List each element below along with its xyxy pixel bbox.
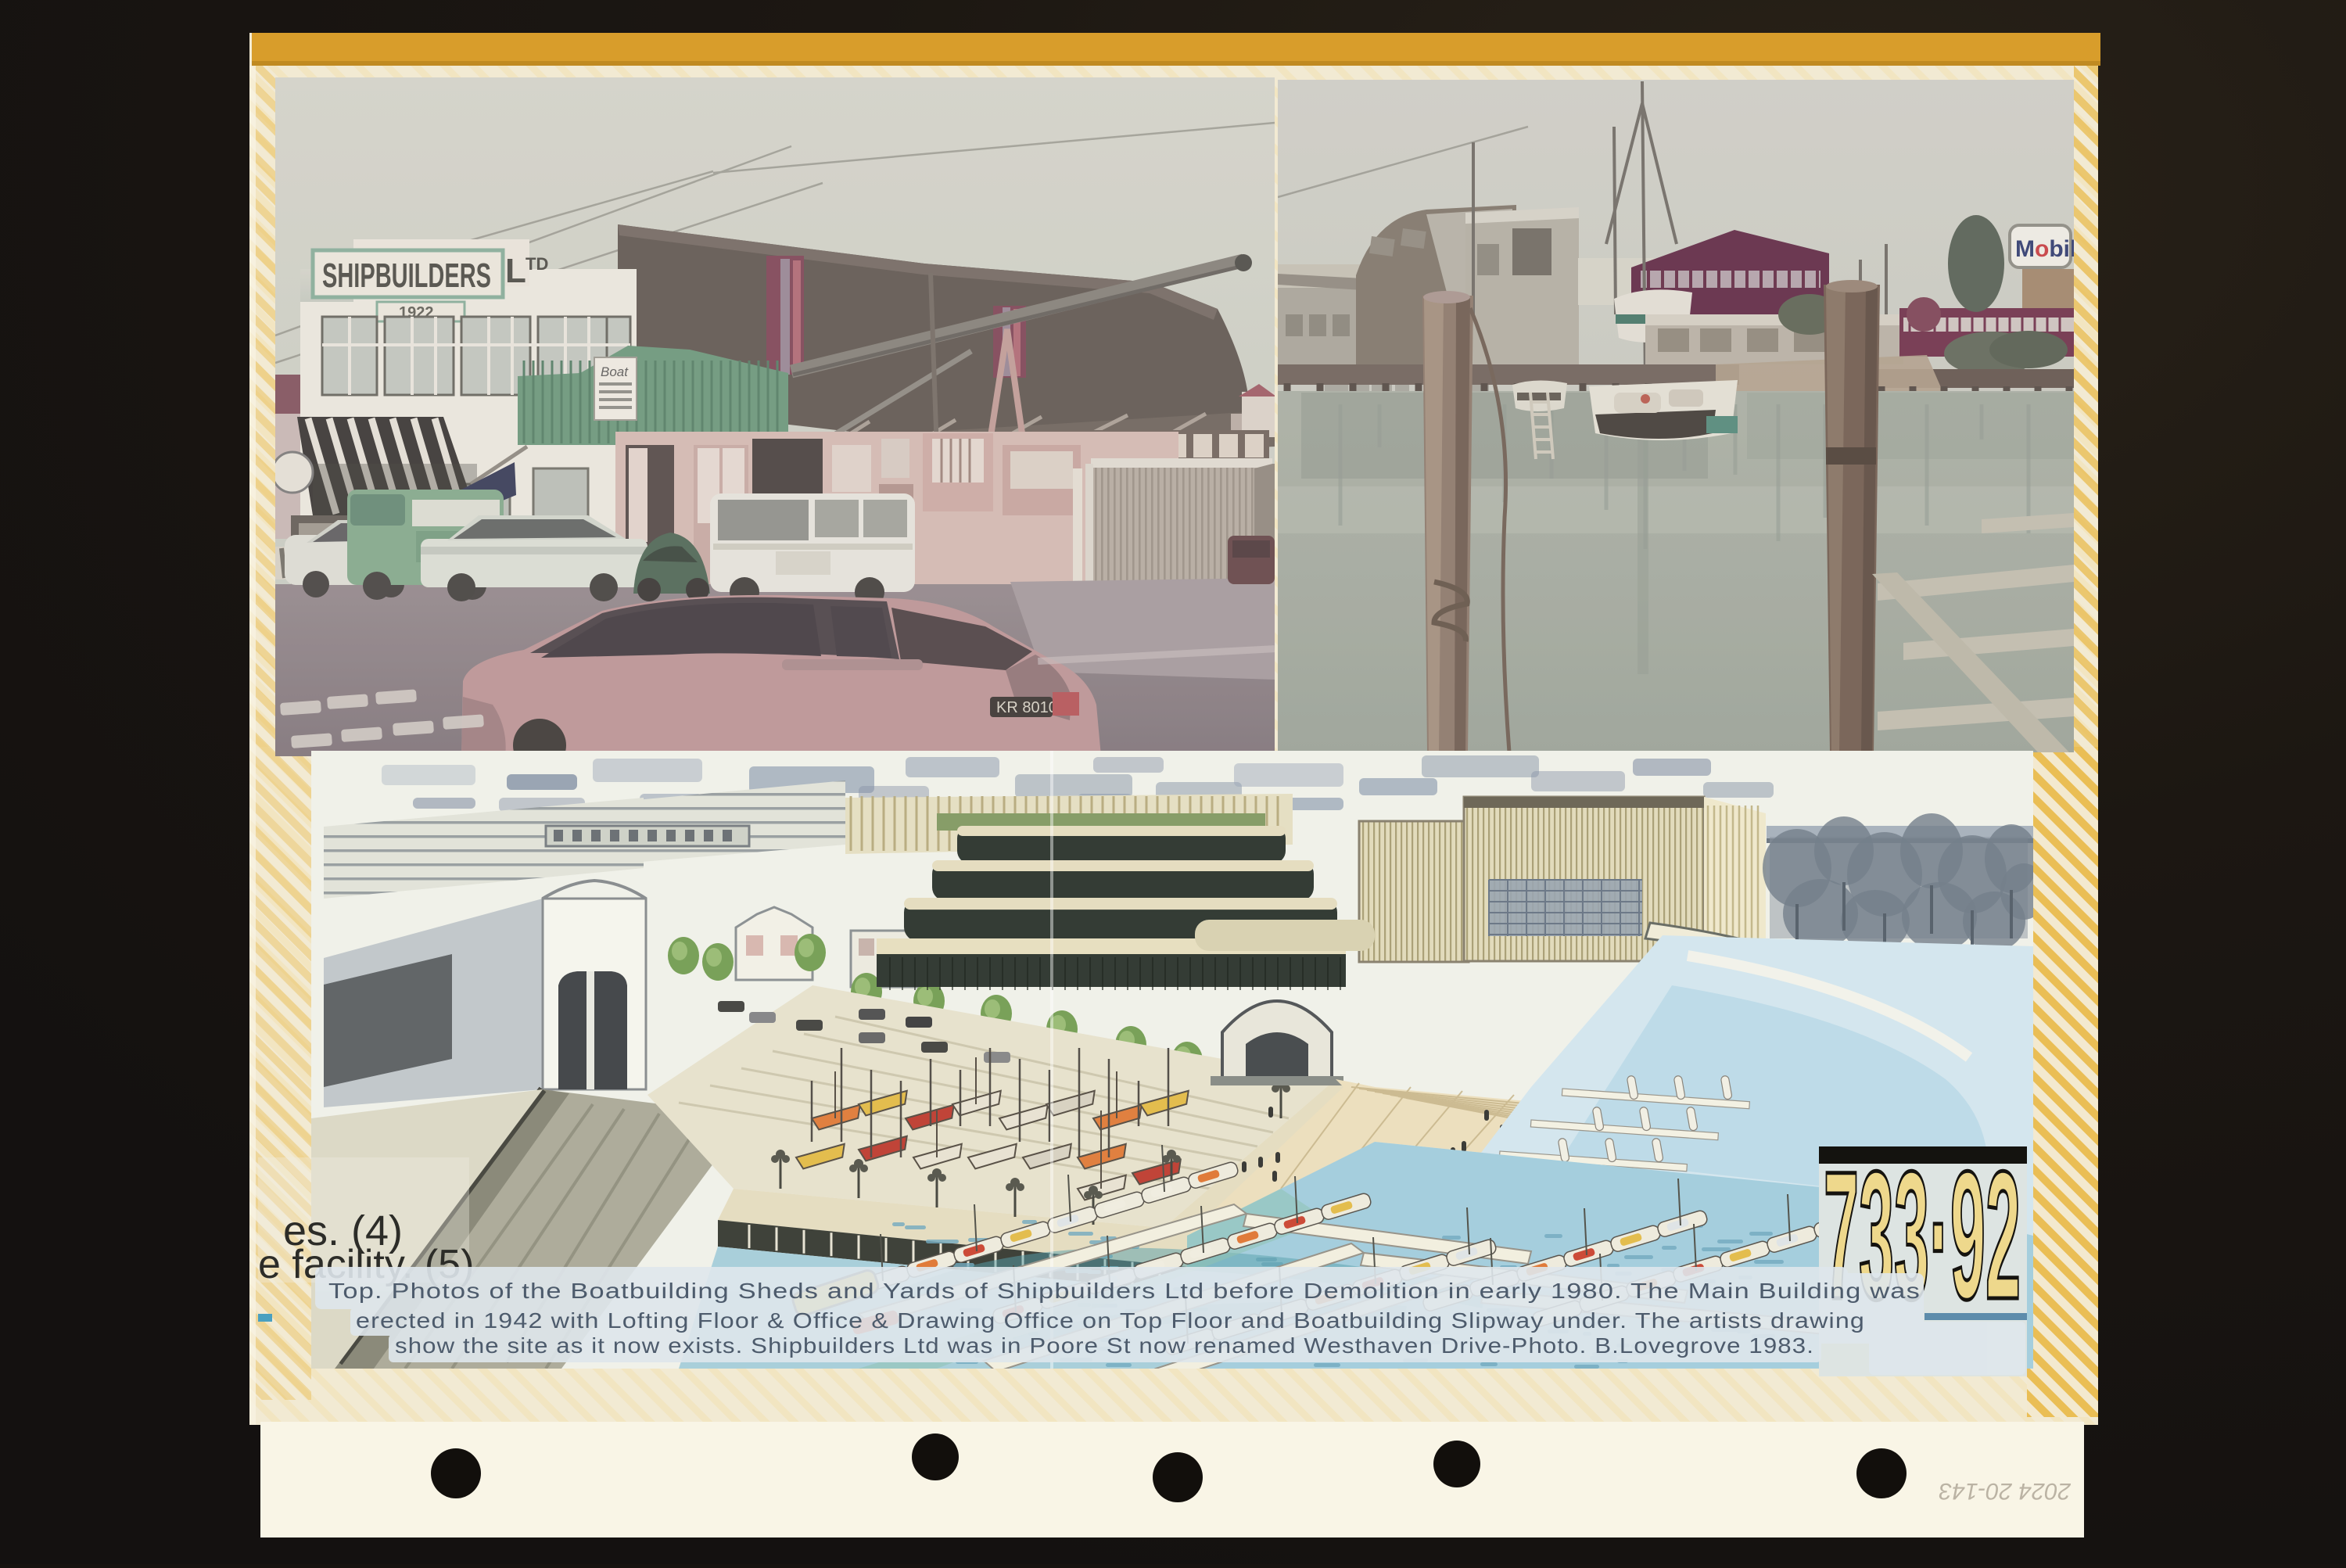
svg-text:2024 20-143: 2024 20-143 <box>1939 1478 2072 1504</box>
svg-text:erected in 1942 with Lofting F: erected in 1942 with Lofting Floor & Off… <box>356 1308 1865 1333</box>
svg-text:Top. Photos of the Boatbuildin: Top. Photos of the Boatbuilding Sheds an… <box>328 1279 1921 1303</box>
svg-text:show the site as it now exists: show the site as it now exists. Shipbuil… <box>395 1333 1814 1358</box>
